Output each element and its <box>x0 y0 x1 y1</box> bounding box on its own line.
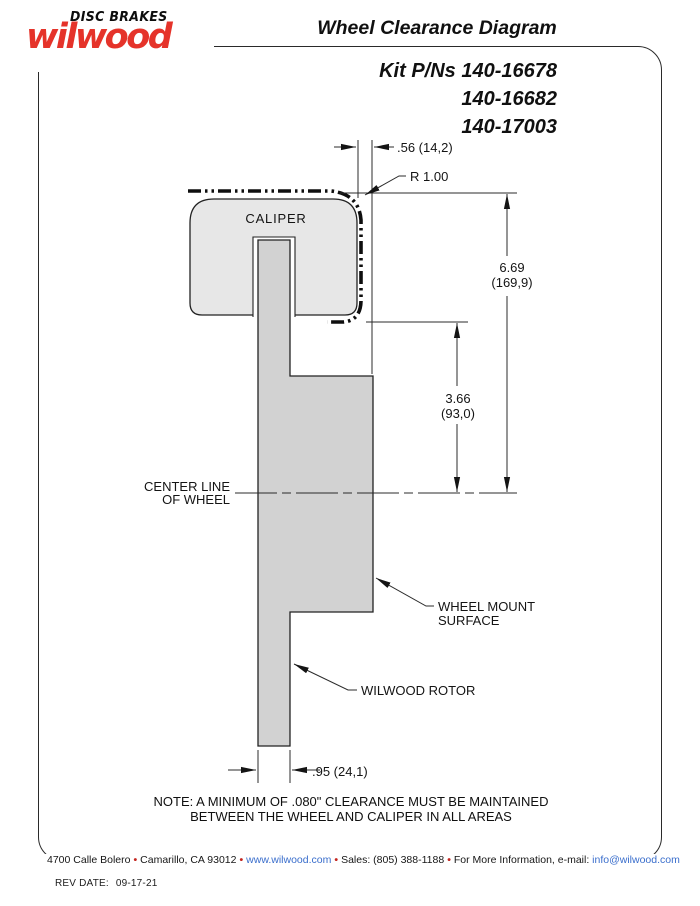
rotor-label: WILWOOD ROTOR <box>361 683 475 698</box>
revision-value: 09-17-21 <box>116 878 158 889</box>
dim-overhang-text: .56 (14,2) <box>397 140 453 155</box>
dim-mount-height-in: 3.66 <box>445 391 470 406</box>
logo-tagline: DISC BRAKES <box>70 10 208 25</box>
footer-sales: Sales: (805) 388-1188 <box>341 854 444 866</box>
dim-mount-height-mm: (93,0) <box>441 406 475 421</box>
revision-date: REV DATE:09-17-21 <box>55 878 158 889</box>
radius-label: R 1.00 <box>410 169 448 184</box>
document-page: DISC BRAKES wilwood Wheel Clearance Diag… <box>0 0 700 906</box>
footer-address: 4700 Calle Bolero <box>47 854 130 866</box>
footer-email-link[interactable]: info@wilwood.com <box>592 854 680 866</box>
footer-city: Camarillo, CA 93012 <box>140 854 236 866</box>
footer-website-link[interactable]: www.wilwood.com <box>246 854 331 866</box>
kit-line-2: 140-16682 <box>379 85 557 113</box>
kit-part-numbers: Kit P/Ns 140-16678 140-16682 140-17003 <box>379 57 557 141</box>
leader-rotor <box>294 664 357 690</box>
wheel-mount-label-line2: SURFACE <box>438 613 500 628</box>
footer-bullet-icon: • <box>334 854 338 866</box>
footer-bar: 4700 Calle Bolero•Camarillo, CA 93012•ww… <box>38 853 662 867</box>
centerline-label-line2: OF WHEEL <box>162 492 230 507</box>
footer-bullet-icon: • <box>447 854 451 866</box>
wilwood-logo: DISC BRAKES wilwood <box>20 10 214 72</box>
caliper-label: CALIPER <box>245 211 306 226</box>
dim-wheel-height-mm: (169,9) <box>491 275 532 290</box>
clearance-note: NOTE: A MINIMUM OF .080" CLEARANCE MUST … <box>95 794 607 824</box>
leader-radius <box>365 176 406 195</box>
wheel-clearance-diagram: CALIPER .56 (14,2) R 1.00 6.69 (169,9) 3… <box>0 0 700 906</box>
revision-label: REV DATE: <box>55 878 109 889</box>
leader-wheel-mount <box>376 578 434 606</box>
footer-more-info: For More Information, e-mail: <box>454 854 589 866</box>
note-line-1: NOTE: A MINIMUM OF .080" CLEARANCE MUST … <box>95 794 607 809</box>
footer-bullet-icon: • <box>239 854 243 866</box>
dim-wheel-height-in: 6.69 <box>499 260 524 275</box>
page-title: Wheel Clearance Diagram <box>262 17 612 40</box>
kit-line-1: Kit P/Ns 140-16678 <box>379 57 557 85</box>
dim-rotor-width-text: .95 (24,1) <box>312 764 368 779</box>
footer-bullet-icon: • <box>133 854 137 866</box>
wheel-mount-label-line1: WHEEL MOUNT <box>438 599 535 614</box>
note-line-2: BETWEEN THE WHEEL AND CALIPER IN ALL ARE… <box>95 809 607 824</box>
footer-text: 4700 Calle Bolero•Camarillo, CA 93012•ww… <box>38 854 689 866</box>
kit-line-3: 140-17003 <box>379 113 557 141</box>
